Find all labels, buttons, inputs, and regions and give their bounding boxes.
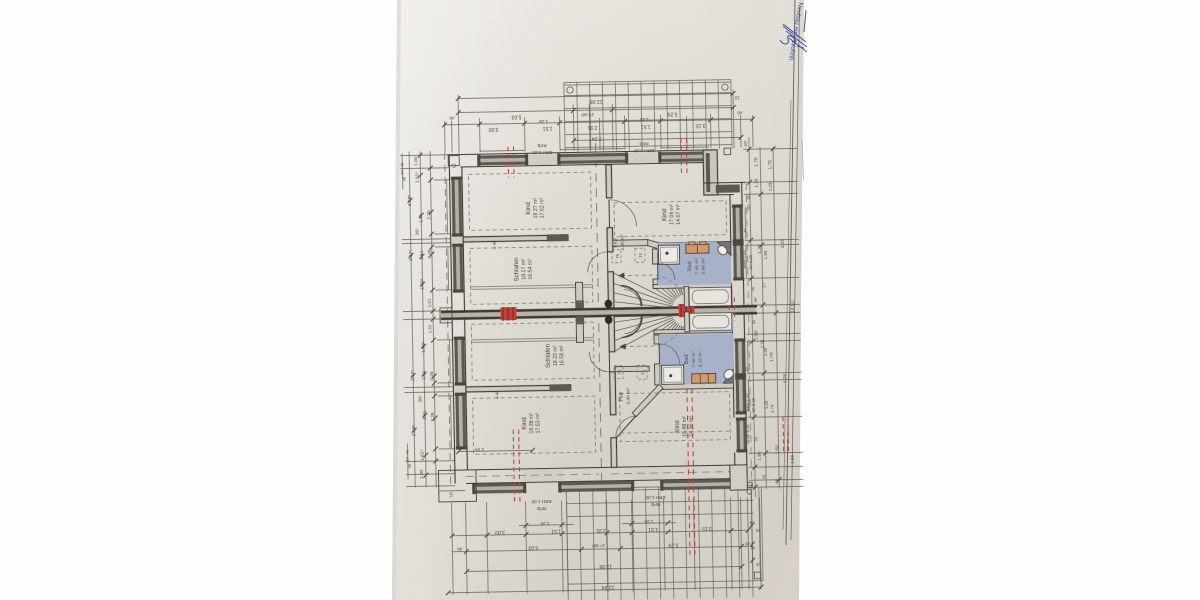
svg-text:1.51: 1.51 <box>422 410 428 420</box>
svg-text:BRH 1.00: BRH 1.00 <box>531 499 551 504</box>
svg-text:14.11¹: 14.11¹ <box>790 300 795 313</box>
svg-text:4.25: 4.25 <box>782 374 788 384</box>
svg-text:12.08: 12.08 <box>590 98 603 104</box>
svg-text:14.67 m²: 14.67 m² <box>676 204 682 225</box>
svg-text:5.29: 5.29 <box>667 111 677 117</box>
svg-text:3.15: 3.15 <box>702 525 712 531</box>
svg-text:1.51: 1.51 <box>551 528 561 534</box>
svg-text:.54: .54 <box>406 457 410 462</box>
svg-text:15.98 m²: 15.98 m² <box>682 416 688 437</box>
svg-text:.54: .54 <box>400 170 404 175</box>
svg-text:RF B.25: RF B.25 <box>748 254 753 270</box>
svg-text:2.26: 2.26 <box>429 371 435 381</box>
svg-text:.46: .46 <box>408 464 412 469</box>
svg-text:.46: .46 <box>403 177 407 182</box>
svg-text:4.25: 4.25 <box>780 239 786 249</box>
svg-text:17.52 m²: 17.52 m² <box>539 197 545 218</box>
svg-text:1.51: 1.51 <box>648 526 658 532</box>
svg-text:3.00: 3.00 <box>495 529 505 535</box>
svg-text:RFB: RFB <box>639 141 648 146</box>
svg-text:5.03: 5.03 <box>528 544 538 550</box>
svg-text:BRH 1.00: BRH 1.00 <box>645 495 665 500</box>
svg-text:RFB: RFB <box>651 502 660 507</box>
svg-text:1Ω: 1Ω <box>448 492 453 498</box>
svg-text:Schlafen: Schlafen <box>545 343 552 368</box>
svg-text:3.00: 3.00 <box>489 126 499 132</box>
svg-text:2.26: 2.26 <box>426 210 432 220</box>
svg-text:Bad: Bad <box>687 261 693 271</box>
svg-text:18.22 m²: 18.22 m² <box>553 345 559 366</box>
svg-text:RFB: RFB <box>537 506 546 511</box>
svg-text:86⁵: 86⁵ <box>753 296 758 303</box>
svg-text:BRH 1.00: BRH 1.00 <box>634 148 654 153</box>
svg-text:19.28 m²: 19.28 m² <box>529 413 535 434</box>
svg-text:1.75: 1.75 <box>767 160 773 170</box>
svg-text:1.50: 1.50 <box>775 445 781 455</box>
svg-text:1.00¹: 1.00¹ <box>419 278 425 289</box>
svg-text:1¹¹ 68⁵: 1¹¹ 68⁵ <box>591 543 605 548</box>
svg-text:Kind: Kind <box>525 201 532 214</box>
svg-text:2.17⁷: 2.17⁷ <box>410 370 416 381</box>
svg-text:5.29: 5.29 <box>668 542 678 548</box>
svg-text:1.29: 1.29 <box>754 178 760 188</box>
svg-text:19.27 m²: 19.27 m² <box>533 198 539 219</box>
svg-text:Flur: Flur <box>613 238 619 248</box>
svg-text:.48: .48 <box>406 450 410 455</box>
svg-text:1.26: 1.26 <box>757 244 762 253</box>
svg-text:1.94: 1.94 <box>763 250 768 259</box>
svg-text:2.26: 2.26 <box>427 249 433 259</box>
svg-text:1.96: 1.96 <box>757 451 763 461</box>
svg-text:.48: .48 <box>400 163 404 168</box>
svg-text:7K: 7K <box>615 253 620 258</box>
svg-text:.46: .46 <box>449 116 456 121</box>
svg-text:2.18⁸: 2.18⁸ <box>407 195 413 206</box>
svg-text:2 04: 2 04 <box>475 447 484 452</box>
svg-text:.46: .46 <box>774 478 779 485</box>
svg-text:7.24: 7.24 <box>592 135 602 141</box>
svg-text:1.28: 1.28 <box>760 339 765 348</box>
svg-text:1.00: 1.00 <box>413 156 419 166</box>
svg-text:1.26: 1.26 <box>539 119 548 124</box>
svg-text:1.51: 1.51 <box>421 370 427 380</box>
svg-text:G: G <box>452 162 456 168</box>
svg-text:1.31: 1.31 <box>427 298 432 307</box>
svg-text:.46: .46 <box>737 110 744 115</box>
svg-text:17.53 m²: 17.53 m² <box>535 413 541 434</box>
svg-text:1¹¹ 68⁵: 1¹¹ 68⁵ <box>581 112 595 117</box>
svg-text:.46: .46 <box>457 547 464 552</box>
svg-text:1.31: 1.31 <box>427 324 432 333</box>
svg-text:4.40 m²: 4.40 m² <box>625 388 631 405</box>
svg-text:14.36 m²: 14.36 m² <box>688 416 694 437</box>
svg-text:1.26: 1.26 <box>644 519 653 524</box>
svg-text:2.91: 2.91 <box>588 124 598 130</box>
svg-text:5.96 m²: 5.96 m² <box>701 258 707 275</box>
svg-text:2.26: 2.26 <box>430 412 436 422</box>
svg-text:16: 16 <box>756 562 761 567</box>
svg-text:1.51: 1.51 <box>543 125 553 131</box>
svg-text:1.00: 1.00 <box>419 469 425 479</box>
svg-text:.46: .46 <box>745 541 752 546</box>
svg-text:.36⁵: .36⁵ <box>418 395 423 403</box>
svg-text:16.58 m²: 16.58 m² <box>559 345 565 366</box>
svg-text:1.01⁴: 1.01⁴ <box>414 172 420 184</box>
svg-text:1.51: 1.51 <box>418 213 424 223</box>
svg-text:1.29: 1.29 <box>768 182 773 191</box>
svg-text:4.30 m²: 4.30 m² <box>620 234 626 251</box>
svg-text:1.79¹: 1.79¹ <box>769 351 774 362</box>
svg-text:Kind: Kind <box>521 417 528 430</box>
svg-text:2.91: 2.91 <box>596 527 606 533</box>
svg-text:1.51: 1.51 <box>641 123 651 129</box>
svg-text:16.54 m²: 16.54 m² <box>528 259 534 280</box>
svg-text:1.26: 1.26 <box>763 347 768 356</box>
svg-text:1.59¹: 1.59¹ <box>753 330 758 341</box>
svg-text:19: 19 <box>734 95 739 100</box>
svg-text:RF B.25: RF B.25 <box>751 397 756 413</box>
svg-text:1.75: 1.75 <box>753 157 759 167</box>
svg-text:Flur: Flur <box>619 392 625 402</box>
svg-text:6.10 m²: 6.10 m² <box>697 351 703 368</box>
svg-text:Kind: Kind <box>674 420 681 433</box>
svg-text:2.17⁷: 2.17⁷ <box>408 250 414 261</box>
svg-text:16: 16 <box>755 528 760 533</box>
svg-text:19: 19 <box>749 520 754 525</box>
svg-text:3.15: 3.15 <box>695 122 705 128</box>
svg-text:12.24: 12.24 <box>602 584 615 590</box>
svg-text:1.00¹: 1.00¹ <box>421 341 427 352</box>
svg-text:1.96: 1.96 <box>790 454 796 464</box>
svg-text:7K: 7K <box>617 369 622 374</box>
svg-text:Kind: Kind <box>661 208 668 221</box>
svg-text:1.74: 1.74 <box>770 404 775 413</box>
svg-text:RFB: RFB <box>537 143 546 148</box>
svg-text:Schlafen: Schlafen <box>513 257 520 282</box>
svg-text:21: 21 <box>638 252 643 258</box>
svg-text:7.45 m²: 7.45 m² <box>694 258 700 275</box>
svg-text:1.26: 1.26 <box>640 117 649 122</box>
svg-text:21: 21 <box>640 369 645 375</box>
svg-text:1¹⁵: 1¹⁵ <box>762 282 767 288</box>
svg-text:1.26: 1.26 <box>540 521 549 526</box>
svg-text:1.51: 1.51 <box>419 250 425 260</box>
svg-text:17.04 m²: 17.04 m² <box>669 204 675 225</box>
svg-text:5.03: 5.03 <box>511 113 521 119</box>
svg-text:1.20: 1.20 <box>764 400 769 409</box>
svg-text:1.01⁴: 1.01⁴ <box>420 450 426 462</box>
svg-text:Bad: Bad <box>684 354 690 364</box>
svg-text:40⁵: 40⁵ <box>743 140 748 147</box>
svg-text:7.46 m²: 7.46 m² <box>691 351 697 368</box>
svg-text:12.08: 12.08 <box>599 563 612 569</box>
svg-text:.36⁵: .36⁵ <box>414 228 419 236</box>
svg-text:2.18⁸: 2.18⁸ <box>411 425 417 436</box>
svg-text:BRH 1.00: BRH 1.00 <box>532 150 552 155</box>
svg-text:18.17 m²: 18.17 m² <box>521 259 527 280</box>
